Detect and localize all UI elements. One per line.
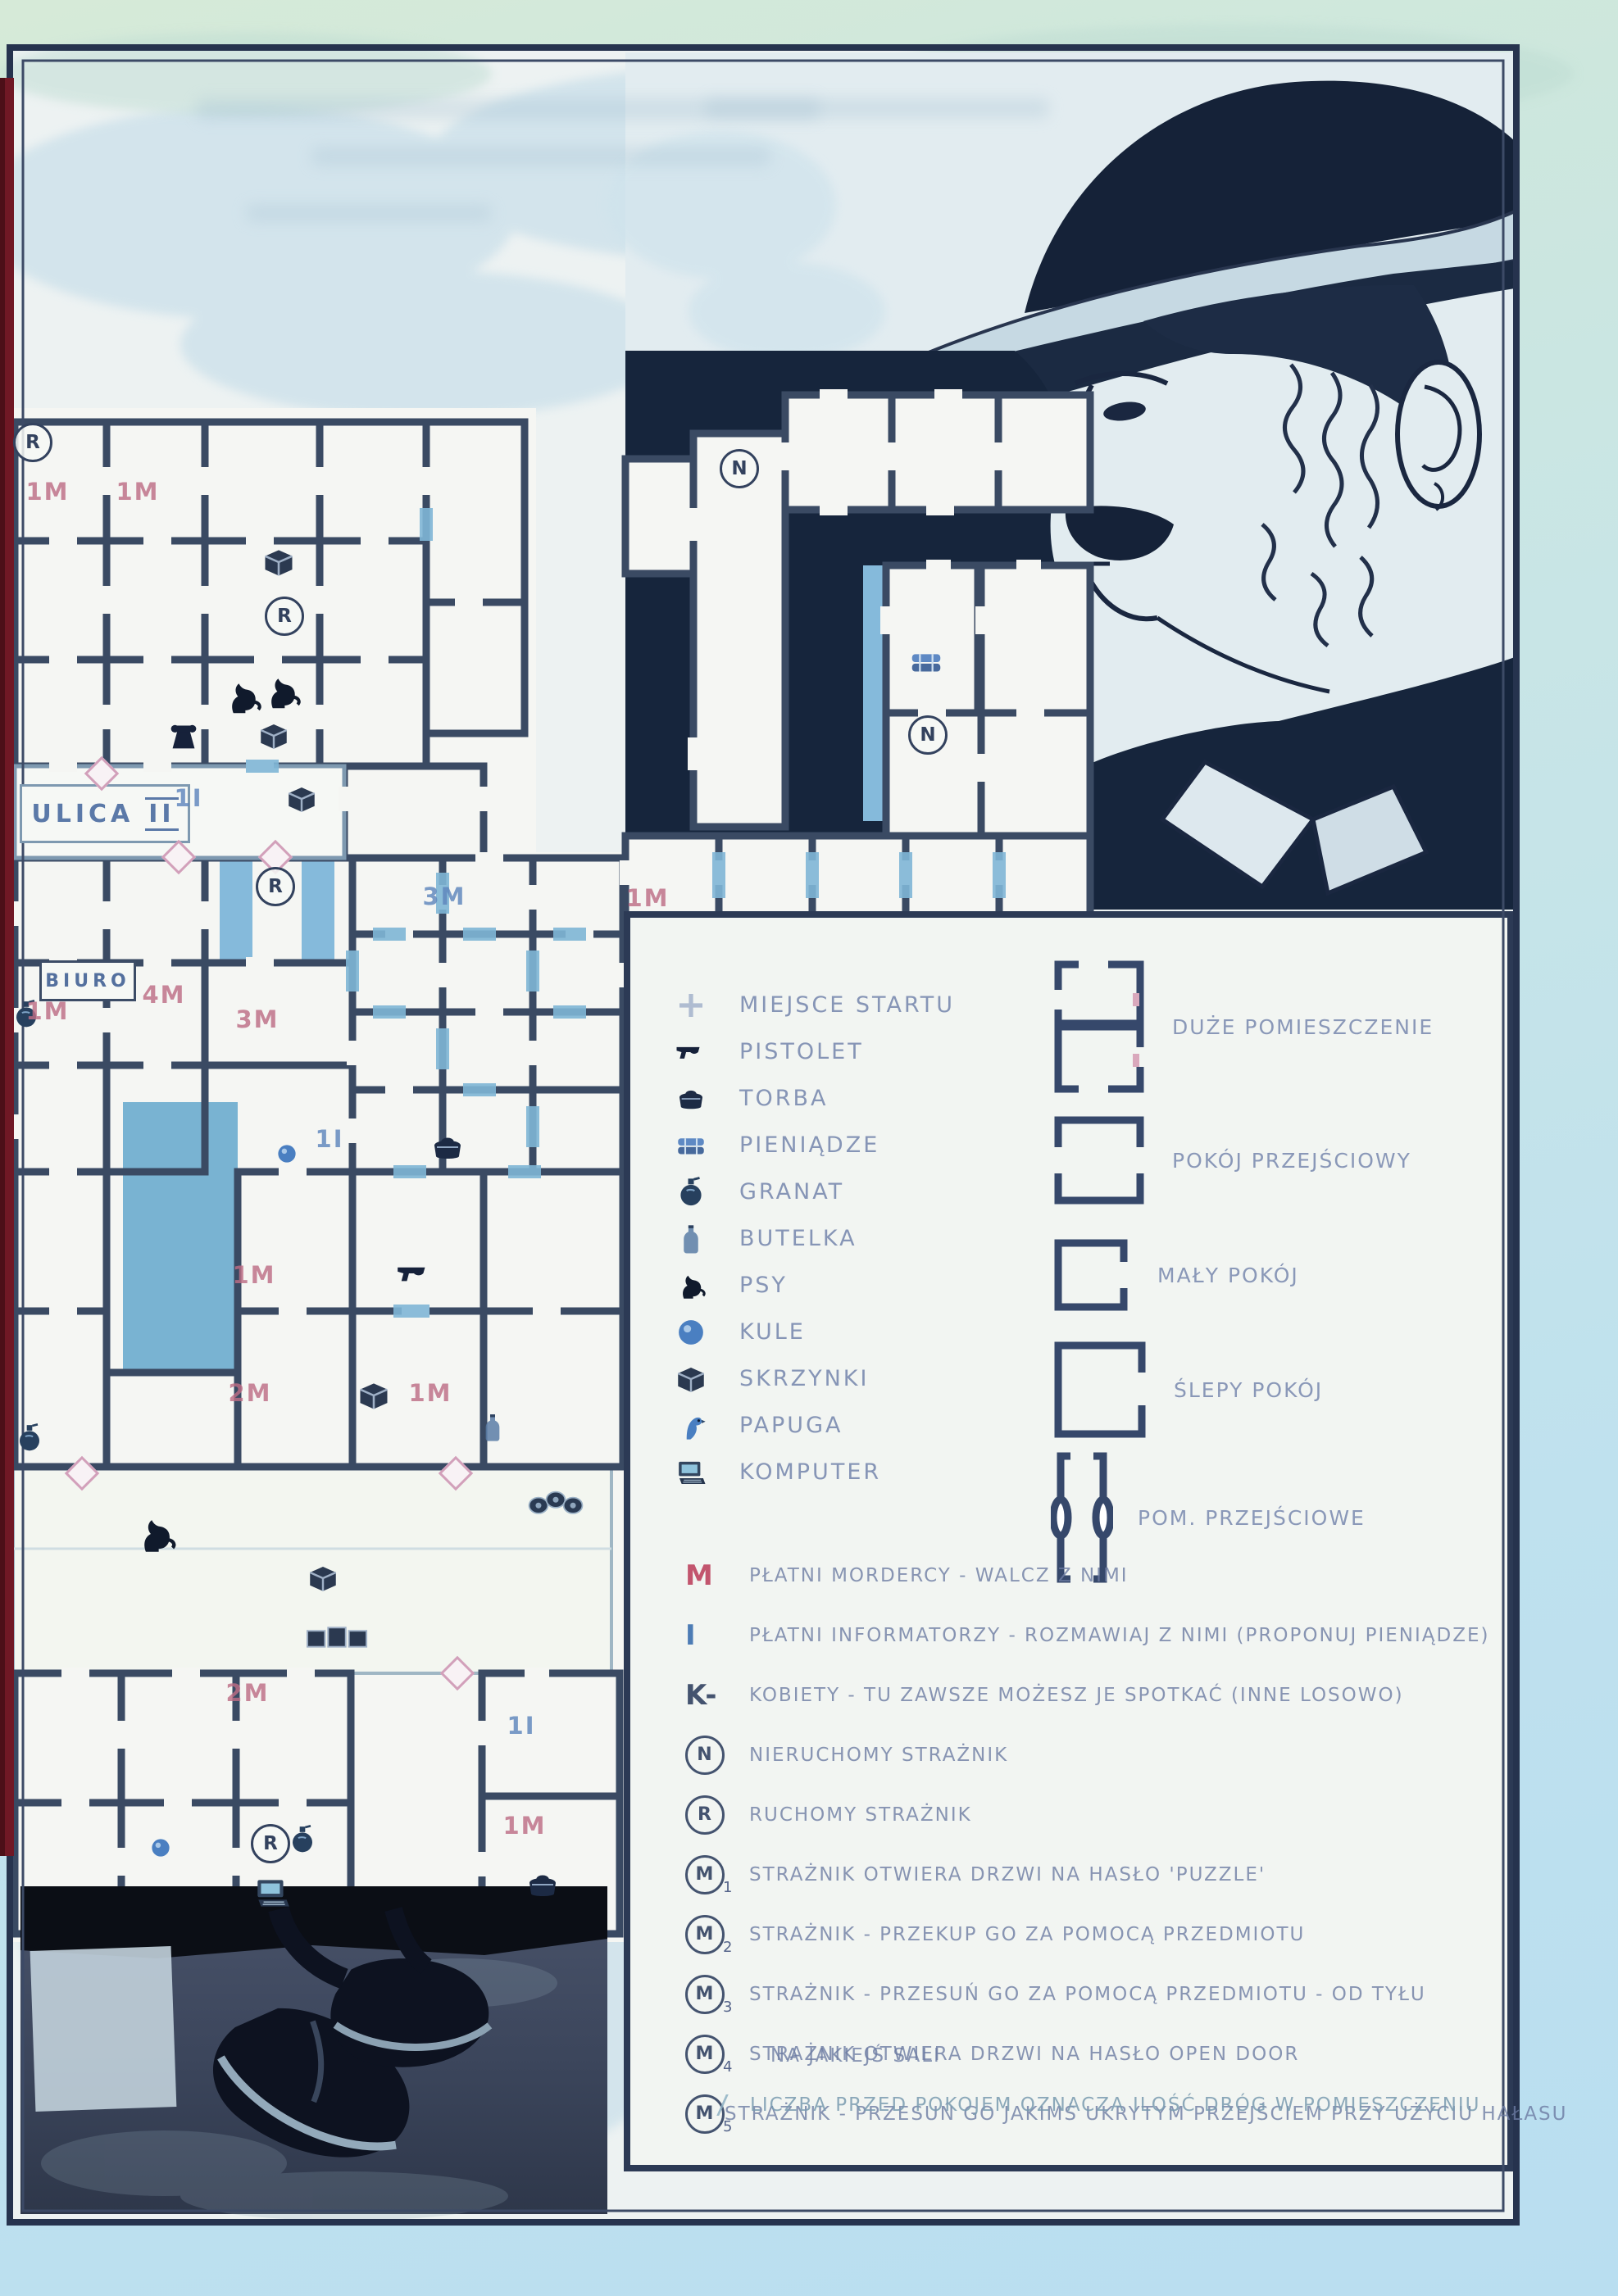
legend-item-icon-cell [661, 1222, 721, 1256]
guard-marker-n: N [720, 449, 759, 488]
legend-item-label: MIEJSCE STARTU [739, 992, 955, 1018]
guard-marker-n: N [908, 715, 948, 755]
room-type-glyph-pass [1051, 1113, 1148, 1208]
legend-item-label: PIENIĄDZE [739, 1132, 879, 1158]
guard-marker-r: R [251, 1824, 290, 1863]
legend-item-list: MIEJSCE STARTUPISTOLETTORBAPIENIĄDZEGRAN… [661, 982, 1046, 1495]
room-label: 2M [228, 1379, 271, 1407]
legend-item-icon-cell [661, 1315, 721, 1350]
crate-icon [674, 1362, 708, 1396]
bottle-map-icon [476, 1411, 509, 1447]
street-sign: ULICA II [20, 784, 190, 843]
legend-item: PAPUGA [661, 1402, 1046, 1449]
ball-icon [148, 1835, 173, 1860]
grenade-map-icon [13, 1422, 46, 1458]
phone-icon [165, 717, 202, 755]
dog-map-icon [220, 674, 265, 722]
money-icon [674, 1128, 708, 1163]
legend-item-label: TORBA [739, 1086, 829, 1111]
note-mark-m4: M [685, 2035, 725, 2074]
note-mark-m: M [685, 1559, 714, 1592]
note-text: PŁATNI MORDERCY - WALCZ Z NIMI [749, 1565, 1129, 1586]
room-type-label: MAŁY POKÓJ [1157, 1264, 1299, 1287]
guard-marker-r: R [256, 867, 295, 906]
ball-map-icon [275, 1141, 299, 1169]
note-symbol-cell: N [685, 1736, 749, 1775]
legend-item-label: PISTOLET [739, 1039, 864, 1064]
note-text: KOBIETY - TU ZAWSZE MOŻESZ JE SPOTKAĆ (I… [749, 1685, 1404, 1706]
legend-item: PSY [661, 1262, 1046, 1309]
dog-map-icon [132, 1510, 180, 1561]
room-label: 1M [408, 1379, 452, 1407]
legend-note: RRUCHOMY STRAŻNIK [685, 1785, 1505, 1845]
crate-map-icon [284, 782, 319, 819]
legend-item: KULE [661, 1309, 1046, 1355]
room-label: 1I [316, 1125, 344, 1153]
note-mark-subscript: 4 [723, 2058, 732, 2076]
room-type-row: POKÓJ PRZEJŚCIOWY [1051, 1113, 1411, 1208]
legend-item: PIENIĄDZE [661, 1122, 1046, 1168]
legend-item: PISTOLET [661, 1028, 1046, 1075]
computer-icon [252, 1872, 293, 1913]
room-label: 1I [175, 784, 203, 812]
start-icon [674, 988, 708, 1023]
room-label: 3M [422, 883, 466, 910]
room-type-row: ŚLEPY POKÓJ [1051, 1338, 1323, 1441]
room-label: 1M [232, 1261, 275, 1289]
room-type-row: DUŻE POMIESZCZENIE [1051, 957, 1434, 1096]
footnote-text: LICZBA PRZED POKOJEM OZNACZA ILOŚĆ DRÓG … [750, 2094, 1481, 2116]
note-text: PŁATNI INFORMATORZY - ROZMAWIAJ Z NIMI (… [749, 1625, 1489, 1646]
note-symbol-cell: I [685, 1619, 749, 1652]
note-mark-m3: M [685, 1975, 725, 2014]
office-sign: BIURO [39, 960, 136, 1001]
bag-map-icon [428, 1128, 467, 1170]
legend-item-icon-cell [661, 1175, 721, 1209]
room-label: 1M [25, 478, 69, 506]
note-mark-n: N [685, 1736, 725, 1775]
ball-icon [275, 1141, 299, 1166]
crates3-map-icon [306, 1622, 370, 1654]
scanned-magazine-page: RRRRNN 1M1M1I4M1M3M3M1M1I1M2M1M2M1I1M UL… [0, 0, 1618, 2296]
legend-item: GRANAT [661, 1168, 1046, 1215]
bag-icon [674, 1082, 708, 1116]
office-sign-text: BIURO [45, 971, 130, 991]
legend-item-icon-cell [661, 1362, 721, 1396]
legend-note: MPŁATNI MORDERCY - WALCZ Z NIMI [685, 1545, 1505, 1605]
crate-map-icon [261, 544, 297, 583]
legend-item-icon-cell [661, 1128, 721, 1163]
computer-icon [674, 1455, 708, 1490]
legend-item: SKRZYNKI [661, 1355, 1046, 1402]
legend-item: KOMPUTER [661, 1449, 1046, 1495]
note-mark-subscript: 1 [723, 1879, 732, 1896]
crate-map-icon [356, 1377, 392, 1417]
legend-item-icon-cell [661, 988, 721, 1023]
note-mark-subscript: 2 [723, 1939, 732, 1956]
parrot-icon [674, 1409, 708, 1443]
room-type-glyph-blind [1051, 1338, 1149, 1441]
ball-map-icon [148, 1835, 173, 1863]
computer-map-icon [252, 1872, 293, 1917]
print-bleed-ghost [311, 147, 770, 166]
legend-note: M1STRAŻNIK OTWIERA DRZWI NA HASŁO 'PUZZL… [685, 1845, 1505, 1904]
grenade-map-icon [286, 1823, 319, 1859]
note-text: STRAŻNIK OTWIERA DRZWI NA HASŁO 'PUZZLE' [749, 1864, 1266, 1885]
crate-map-icon [257, 719, 291, 756]
pistol-icon [394, 1253, 435, 1294]
legend-item-icon-cell [661, 1455, 721, 1490]
note-symbol-cell: M4 [685, 2035, 749, 2074]
room-type-label: POKÓJ PRZEJŚCIOWY [1172, 1149, 1411, 1173]
note-symbol-cell: M1 [685, 1855, 749, 1894]
legend-item-label: SKRZYNKI [739, 1366, 869, 1391]
note-symbol-cell: R [685, 1795, 749, 1835]
crate-icon [257, 719, 291, 753]
guard-marker-r: R [13, 423, 52, 462]
legend-item-label: BUTELKA [739, 1226, 857, 1251]
note-mark-i: I [685, 1619, 697, 1652]
note-mark-m1: M [685, 1855, 725, 1894]
legend-note: NNIERUCHOMY STRAŻNIK [685, 1725, 1505, 1785]
note-text: NIERUCHOMY STRAŻNIK [749, 1745, 1008, 1766]
dog-icon [260, 669, 304, 714]
room-type-glyph-large [1051, 957, 1148, 1096]
room-label: 4M [142, 981, 185, 1009]
note-mark-subscript: 3 [723, 1999, 732, 2016]
pistol-icon [674, 1035, 708, 1069]
print-bleed-ghost [246, 205, 492, 221]
legend-item-label: KULE [739, 1319, 806, 1345]
bag-icon [523, 1865, 562, 1904]
note-text: STRAŻNIK - PRZESUŃ GO ZA POMOCĄ PRZEDMIO… [749, 1984, 1426, 2005]
crates3-icon [306, 1622, 370, 1651]
room-type-row: MAŁY POKÓJ [1051, 1236, 1299, 1314]
dog-icon [220, 674, 265, 719]
money-icon [907, 643, 945, 681]
moneyrolls-icon [524, 1486, 588, 1515]
legend-item: TORBA [661, 1075, 1046, 1122]
note-continuation: NA JAKIEJŚ SALI [770, 2045, 941, 2067]
crate-icon [261, 544, 297, 580]
bottle-icon [674, 1222, 708, 1256]
note-symbol-cell: M [685, 1559, 749, 1592]
legend-item-label: PSY [739, 1273, 788, 1298]
room-type-label: ŚLEPY POKÓJ [1174, 1378, 1323, 1402]
legend-item-label: KOMPUTER [739, 1459, 881, 1485]
note-text: STRAŻNIK - PRZEKUP GO ZA POMOCĄ PRZEDMIO… [749, 1924, 1305, 1945]
street-sign-text: ULICA [31, 800, 134, 828]
legend-note: IPŁATNI INFORMATORZY - ROZMAWIAJ Z NIMI … [685, 1605, 1505, 1665]
legend-item-label: GRANAT [739, 1179, 844, 1205]
guard-marker-r: R [265, 597, 304, 636]
room-label: 1M [116, 478, 159, 506]
grenade-icon [13, 1422, 46, 1454]
dog-icon [132, 1510, 180, 1558]
room-label: 3M [235, 1005, 279, 1033]
legend-item-icon-cell [661, 1082, 721, 1116]
room-label: 1I [507, 1712, 536, 1740]
crate-icon [284, 782, 319, 816]
legend-note: M2STRAŻNIK - PRZEKUP GO ZA POMOCĄ PRZEDM… [685, 1904, 1505, 1964]
note-mark-r: R [685, 1795, 725, 1835]
note-symbol-cell: M3 [685, 1975, 749, 2014]
legend-note: M3STRAŻNIK - PRZESUŃ GO ZA POMOCĄ PRZEDM… [685, 1964, 1505, 2024]
room-type-label: DUŻE POMIESZCZENIE [1172, 1015, 1434, 1039]
bag-icon [428, 1128, 467, 1167]
note-mark-k-: K- [685, 1679, 718, 1712]
room-label: 2M [225, 1679, 269, 1707]
crate-icon [356, 1377, 392, 1413]
money-map-icon [907, 643, 945, 684]
note-mark-m2: M [685, 1915, 725, 1954]
crate-icon [306, 1561, 340, 1595]
ball-icon [674, 1315, 708, 1350]
legend-item: BUTELKA [661, 1215, 1046, 1262]
bottle-icon [476, 1411, 509, 1444]
legend-footnote: LICZBA PRZED POKOJEM OZNACZA ILOŚĆ DRÓG … [721, 2094, 1481, 2116]
dog-map-icon [260, 669, 304, 717]
bag-map-icon [523, 1865, 562, 1908]
dog-icon [674, 1268, 708, 1303]
legend-note: K-KOBIETY - TU ZAWSZE MOŻESZ JE SPOTKAĆ … [685, 1665, 1505, 1725]
legend-item: MIEJSCE STARTU [661, 982, 1046, 1028]
grenade-icon [286, 1823, 319, 1856]
legend-item-icon-cell [661, 1035, 721, 1069]
room-label: 1M [25, 997, 69, 1025]
note-text: RUCHOMY STRAŻNIK [749, 1804, 972, 1826]
note-symbol-cell: K- [685, 1679, 749, 1712]
room-type-label: POM. PRZEJŚCIOWE [1138, 1506, 1366, 1530]
crate-map-icon [306, 1561, 340, 1599]
shoes-photo [20, 1886, 607, 2221]
room-label: 1M [625, 884, 669, 912]
note-symbol-cell: M2 [685, 1915, 749, 1954]
phone-map-icon [165, 717, 202, 758]
room-type-glyph-small [1051, 1236, 1133, 1314]
pistol-map-icon [394, 1253, 435, 1297]
legend-item-icon-cell [661, 1409, 721, 1443]
print-bleed-ghost [705, 98, 1049, 118]
grenade-icon [674, 1175, 708, 1209]
room-label: 1M [502, 1812, 546, 1840]
moneyrolls-map-icon [524, 1486, 588, 1518]
legend-item-label: PAPUGA [739, 1413, 843, 1438]
legend-item-icon-cell [661, 1268, 721, 1303]
